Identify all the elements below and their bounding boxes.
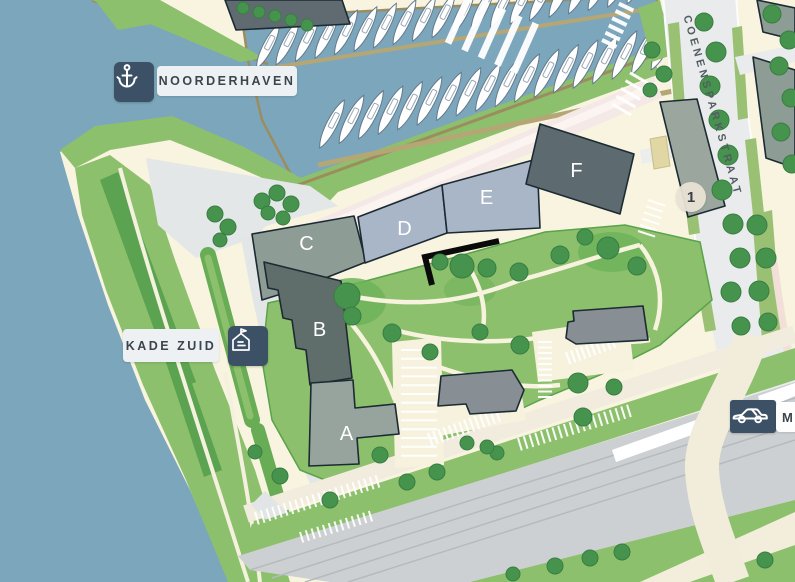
marker-1-number: 1 [687,189,695,206]
tree [480,440,494,454]
building-label: C [299,233,314,255]
tree [383,324,401,342]
tree [568,373,588,393]
tree [237,2,249,14]
tree [207,206,223,222]
tree [770,57,788,75]
kade-zuid-badge: KADE ZUID [123,329,219,362]
tree [757,552,773,568]
tree [511,336,529,354]
tree [422,344,438,360]
tree [782,89,795,107]
tree [472,324,488,340]
tree [285,14,297,26]
tree [614,544,630,560]
tree [429,464,445,480]
noorderhaven-icon-box [114,62,154,102]
map-marker-1[interactable]: 1 [676,182,706,212]
tree [582,550,598,566]
tree [248,445,262,459]
motorway-badge: M [776,402,795,432]
tree [213,233,227,247]
building-se-2 [566,306,648,344]
tree [723,214,743,234]
tree [730,248,750,268]
tree [220,219,236,235]
tree [780,31,795,49]
tree [628,257,646,275]
tree [269,185,285,201]
tree [261,206,275,220]
motorway-icon-box [730,400,776,433]
site-map: C D E F B A NOORDERHAVEN [0,0,795,582]
building-label: F [570,160,583,182]
building-label: B [313,319,327,341]
tree [695,13,713,31]
tree [272,468,288,484]
tree [343,307,361,325]
apartment-building-icon [228,326,254,352]
noorderhaven-badge: NOORDERHAVEN [157,66,297,96]
tree [574,408,592,426]
tree [269,10,281,22]
motorway-label: M [782,410,793,425]
tree [551,246,569,264]
car-icon [730,400,770,426]
tree [656,66,672,82]
tree [510,263,528,281]
tree [644,42,660,58]
tree [460,436,474,450]
tree [597,237,619,259]
building-label: E [480,187,494,209]
tree [756,248,776,268]
tree [334,283,360,309]
tree [253,6,265,18]
tree [606,379,622,395]
anchor-pin-icon [114,62,140,90]
tree [322,492,338,508]
tree [732,317,750,335]
tree [276,211,290,225]
building-label: A [340,423,354,445]
tree [547,558,563,574]
tree [399,474,415,490]
tree [506,567,520,581]
tree [283,196,299,212]
tree [577,229,593,245]
kade-zuid-label: KADE ZUID [126,339,217,353]
tree [432,254,448,270]
tree [643,83,657,97]
annex [650,136,670,169]
tree [721,282,741,302]
noorderhaven-label: NOORDERHAVEN [159,74,296,88]
tree [450,254,474,278]
building-label: D [397,218,412,240]
tree [301,19,313,31]
tree [749,281,769,301]
tree [372,447,388,463]
tree [478,259,496,277]
tree [759,313,777,331]
kade-zuid-icon-box [228,326,268,366]
tree [706,42,726,62]
tree [747,215,767,235]
tree [763,5,781,23]
tree [772,123,790,141]
